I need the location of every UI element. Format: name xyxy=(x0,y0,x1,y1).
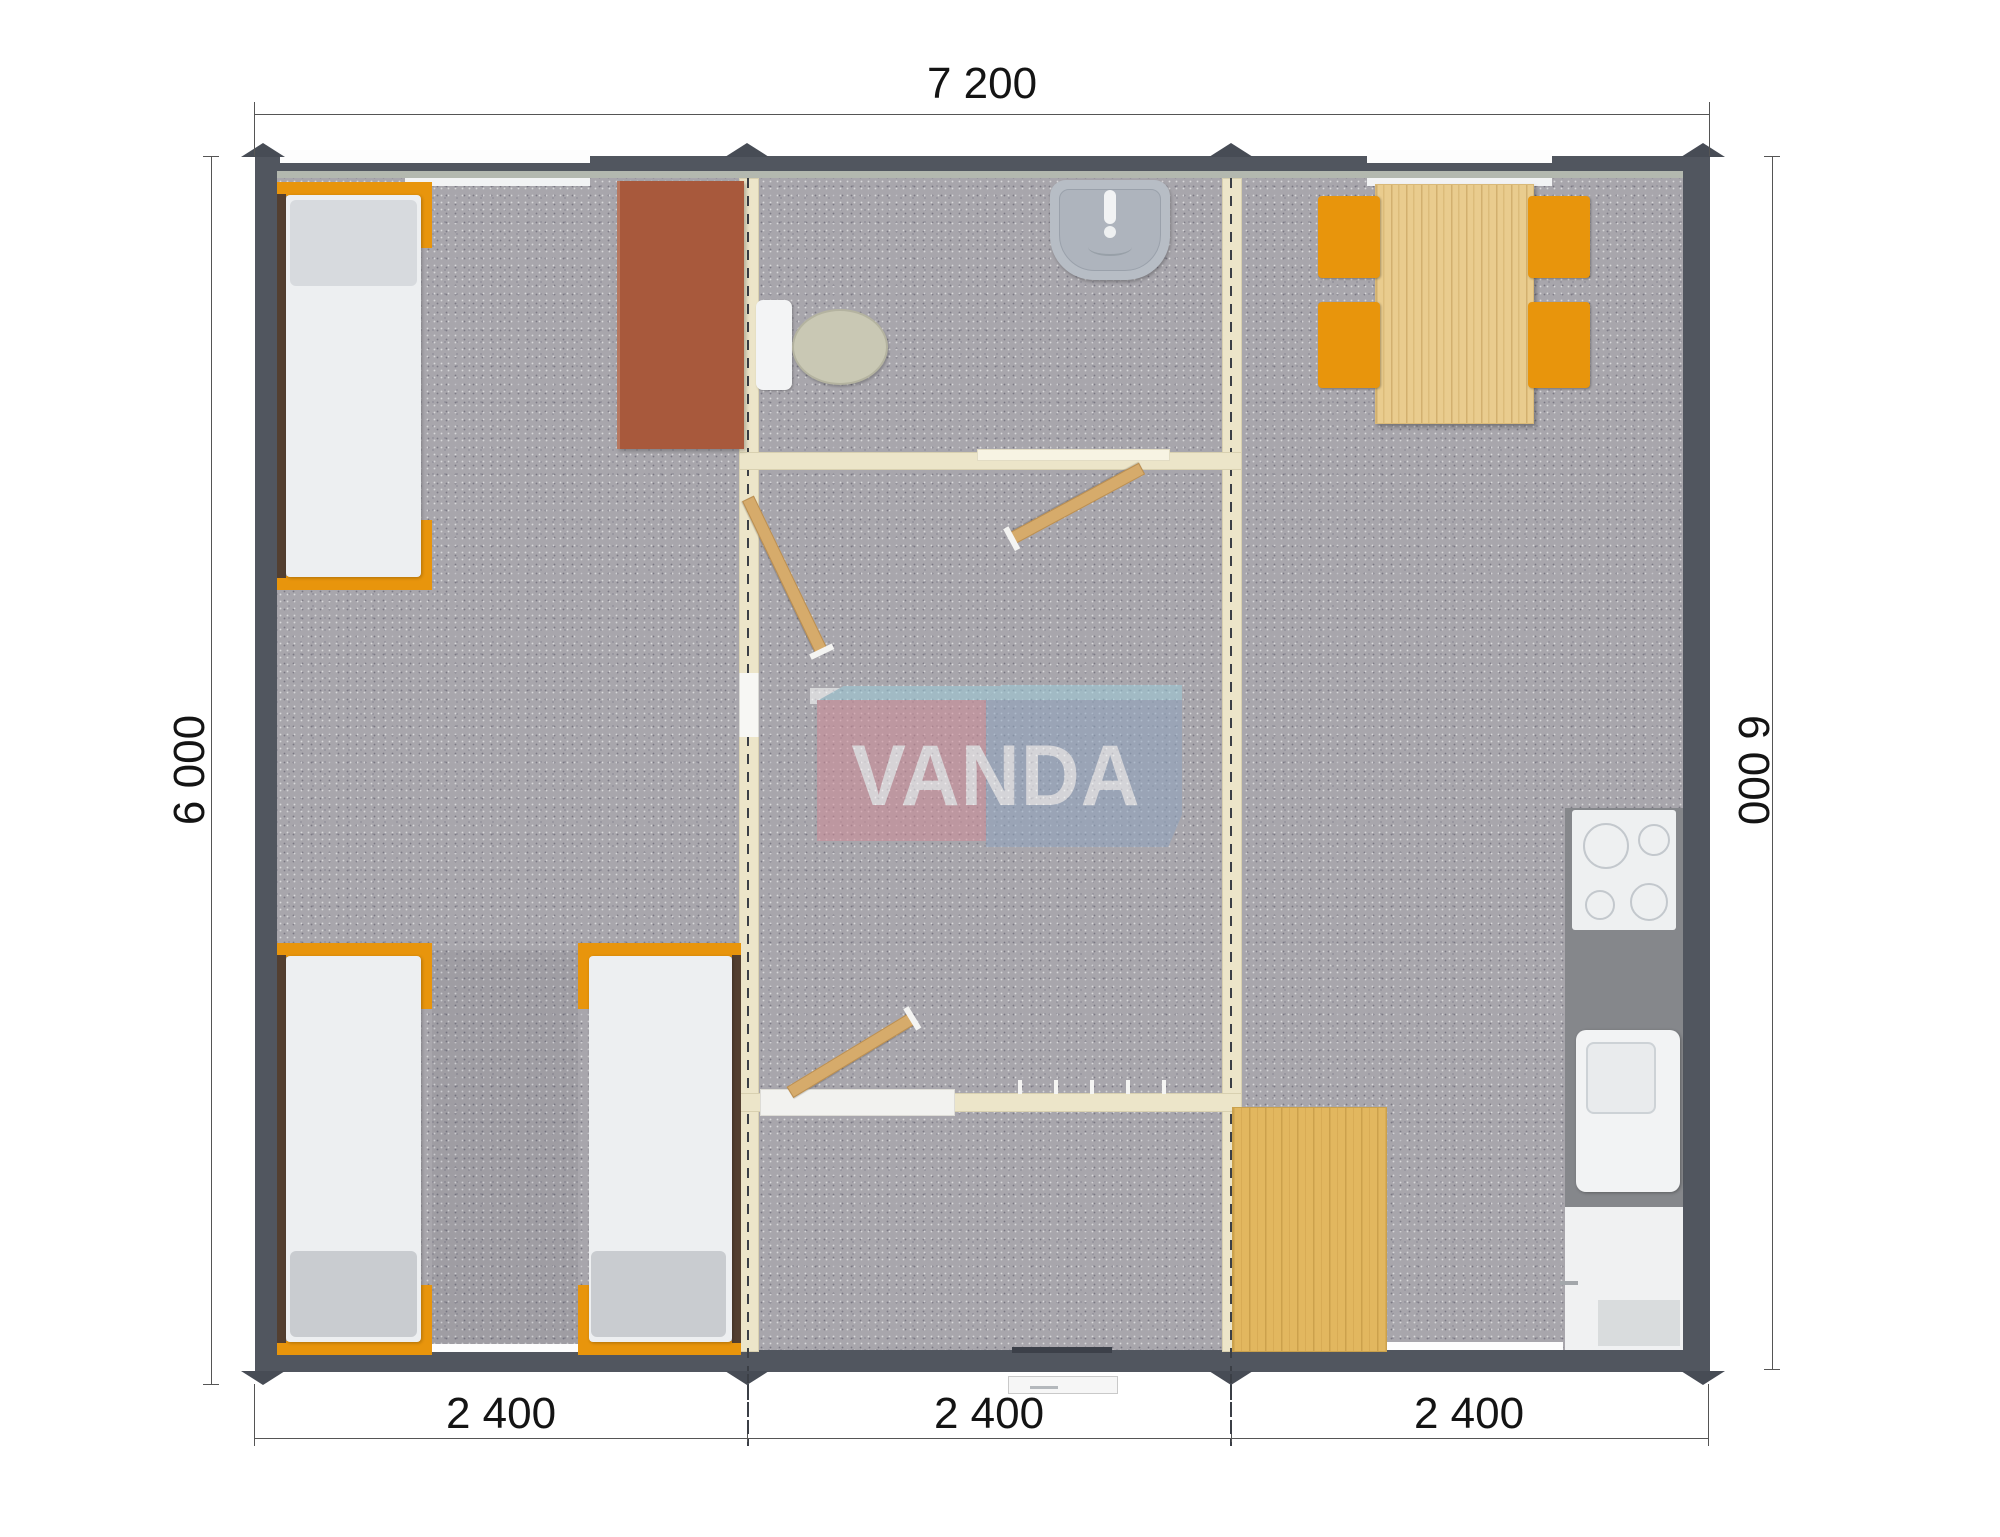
toilet-tank-icon xyxy=(756,300,792,390)
extension-line xyxy=(1709,102,1710,156)
coat-hook xyxy=(1018,1080,1022,1094)
bathroom-door-lintel xyxy=(977,449,1170,461)
extension-line-dashed xyxy=(747,1374,749,1446)
corner-marker xyxy=(1681,143,1725,157)
bed-frame xyxy=(578,1341,741,1355)
extension-line-dashed xyxy=(1230,1374,1232,1446)
window-top-left xyxy=(280,150,590,163)
pillow xyxy=(591,1251,726,1337)
extension-line xyxy=(254,1384,255,1444)
corner-marker xyxy=(241,1371,285,1385)
bed-frame xyxy=(578,943,741,957)
chair-icon xyxy=(1528,196,1590,278)
faucet-icon xyxy=(1104,190,1116,224)
dimension-label-top: 7 200 xyxy=(882,62,1082,106)
coat-hook xyxy=(1162,1080,1166,1094)
desk-icon xyxy=(617,181,744,449)
bed-frame xyxy=(277,182,432,196)
entrance-threshold xyxy=(1012,1347,1112,1353)
chair-icon xyxy=(1528,302,1590,388)
module-joint-marker xyxy=(1209,143,1253,157)
partition-1-door-opening xyxy=(739,673,759,737)
bed-rail xyxy=(277,955,286,1343)
basin-curve xyxy=(1088,238,1132,256)
kitchen-cabinet-panel xyxy=(1598,1300,1680,1346)
burner-icon xyxy=(1638,824,1670,856)
kitchen-sink-icon xyxy=(1576,1030,1680,1192)
dimension-label-module1: 2 400 xyxy=(401,1392,601,1436)
corner-marker xyxy=(241,143,285,157)
walkway-shade xyxy=(432,950,578,1350)
washbasin-icon xyxy=(1050,180,1170,280)
hall-wall-panel xyxy=(760,1089,955,1116)
bed-rail xyxy=(732,955,741,1343)
faucet-base xyxy=(1104,226,1116,238)
extension-line xyxy=(254,102,255,156)
dimension-line-top xyxy=(254,114,1710,115)
wooden-floor-mat xyxy=(1232,1107,1387,1352)
dimension-tick xyxy=(203,1384,219,1385)
dimension-label-left: 6 000 xyxy=(168,680,212,860)
dimension-label-right: 6 000 xyxy=(1731,680,1775,860)
floor-plan: VANDA 7 200 6 000 6 000 2 400 2 400 2 40… xyxy=(0,0,2000,1537)
dimension-label-module2: 2 400 xyxy=(889,1392,1089,1436)
dimension-line-bottom xyxy=(254,1438,1709,1439)
bed-frame xyxy=(277,576,432,590)
logo-box-top xyxy=(986,685,1182,700)
window-sill-left xyxy=(405,178,590,186)
window-bottom-right xyxy=(1385,1342,1563,1350)
bed-top-left xyxy=(277,182,432,590)
bed-frame xyxy=(277,1341,432,1355)
partition-1-centerline xyxy=(747,178,749,1446)
dimension-tick xyxy=(1764,1369,1780,1370)
bed-bottom-middle xyxy=(578,943,741,1355)
dining-table-icon xyxy=(1375,184,1534,424)
module-joint-marker xyxy=(725,143,769,157)
logo-text: VANDA xyxy=(819,733,1172,819)
burner-icon xyxy=(1585,890,1615,920)
dimension-label-module3: 2 400 xyxy=(1369,1392,1569,1436)
kitchen-cabinet-handle xyxy=(1560,1281,1578,1285)
logo-box-top xyxy=(817,686,1007,701)
chair-icon xyxy=(1318,302,1380,388)
chair-icon xyxy=(1318,196,1380,278)
dimension-tick xyxy=(1764,156,1780,157)
bed-frame xyxy=(277,943,432,957)
coat-hook xyxy=(1054,1080,1058,1094)
kitchen-sink-basin xyxy=(1586,1042,1656,1114)
coat-hook xyxy=(1126,1080,1130,1094)
top-wall-liner xyxy=(277,171,1683,178)
bed-rail xyxy=(277,194,286,578)
window-top-right xyxy=(1367,150,1552,163)
stove-icon xyxy=(1572,810,1676,930)
burner-icon xyxy=(1630,883,1668,921)
dimension-tick xyxy=(203,156,219,157)
toilet-icon xyxy=(792,309,888,385)
bed-bottom-left xyxy=(277,943,432,1355)
pillow xyxy=(290,200,417,286)
corner-marker xyxy=(1681,1371,1725,1385)
vanda-logo-watermark: VANDA xyxy=(810,685,1182,857)
coat-hook xyxy=(1090,1080,1094,1094)
extension-line xyxy=(1708,1384,1709,1444)
burner-icon xyxy=(1583,823,1629,869)
pillow xyxy=(290,1251,417,1337)
